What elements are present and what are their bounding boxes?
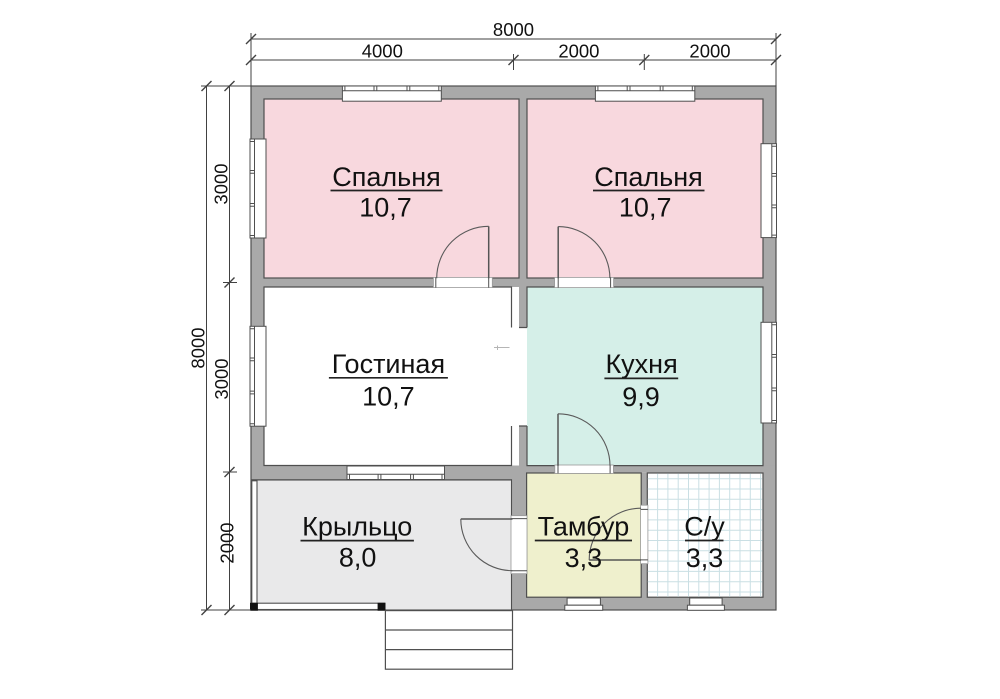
svg-text:Спальня: Спальня — [332, 162, 441, 192]
svg-text:10,7: 10,7 — [362, 382, 415, 412]
svg-text:Гостиная: Гостиная — [332, 349, 445, 379]
svg-text:10,7: 10,7 — [619, 193, 672, 223]
svg-text:3,3: 3,3 — [686, 543, 724, 573]
svg-text:8000: 8000 — [493, 19, 534, 40]
svg-text:10,7: 10,7 — [359, 193, 412, 223]
svg-text:8000: 8000 — [188, 327, 209, 368]
svg-text:3000: 3000 — [211, 358, 232, 399]
svg-text:2000: 2000 — [217, 522, 238, 563]
svg-text:Крыльцо: Крыльцо — [302, 512, 412, 542]
svg-text:С/у: С/у — [684, 512, 725, 542]
svg-text:4000: 4000 — [362, 41, 403, 62]
svg-text:2000: 2000 — [689, 41, 730, 62]
svg-text:2000: 2000 — [558, 41, 599, 62]
svg-text:3000: 3000 — [211, 163, 232, 204]
svg-text:Спальня: Спальня — [594, 162, 703, 192]
svg-text:9,9: 9,9 — [622, 382, 660, 412]
svg-text:3,3: 3,3 — [565, 543, 603, 573]
svg-text:8,0: 8,0 — [339, 543, 377, 573]
svg-text:Кухня: Кухня — [605, 349, 677, 379]
svg-text:Тамбур: Тамбур — [538, 512, 630, 542]
